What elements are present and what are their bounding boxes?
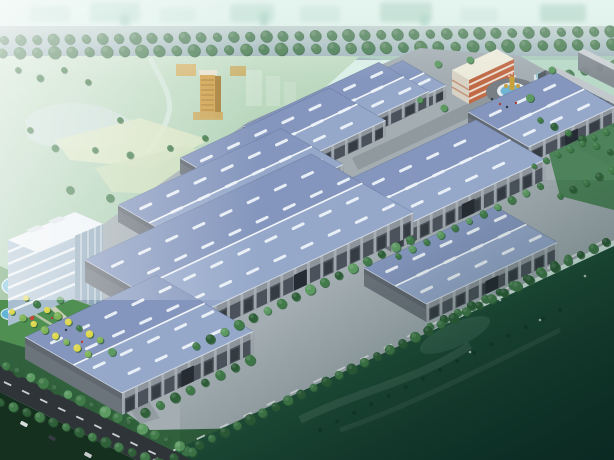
person-dot <box>499 103 501 105</box>
person-dot <box>81 341 83 343</box>
person-dot <box>491 98 493 100</box>
fog-overlay-top <box>0 0 614 80</box>
person-dot <box>515 102 517 104</box>
person-dot <box>65 329 67 331</box>
industrial-park-aerial-rendering <box>0 0 614 460</box>
person-dot <box>51 317 53 319</box>
vignette-bottom-right <box>180 180 614 460</box>
person-dot <box>506 106 508 108</box>
